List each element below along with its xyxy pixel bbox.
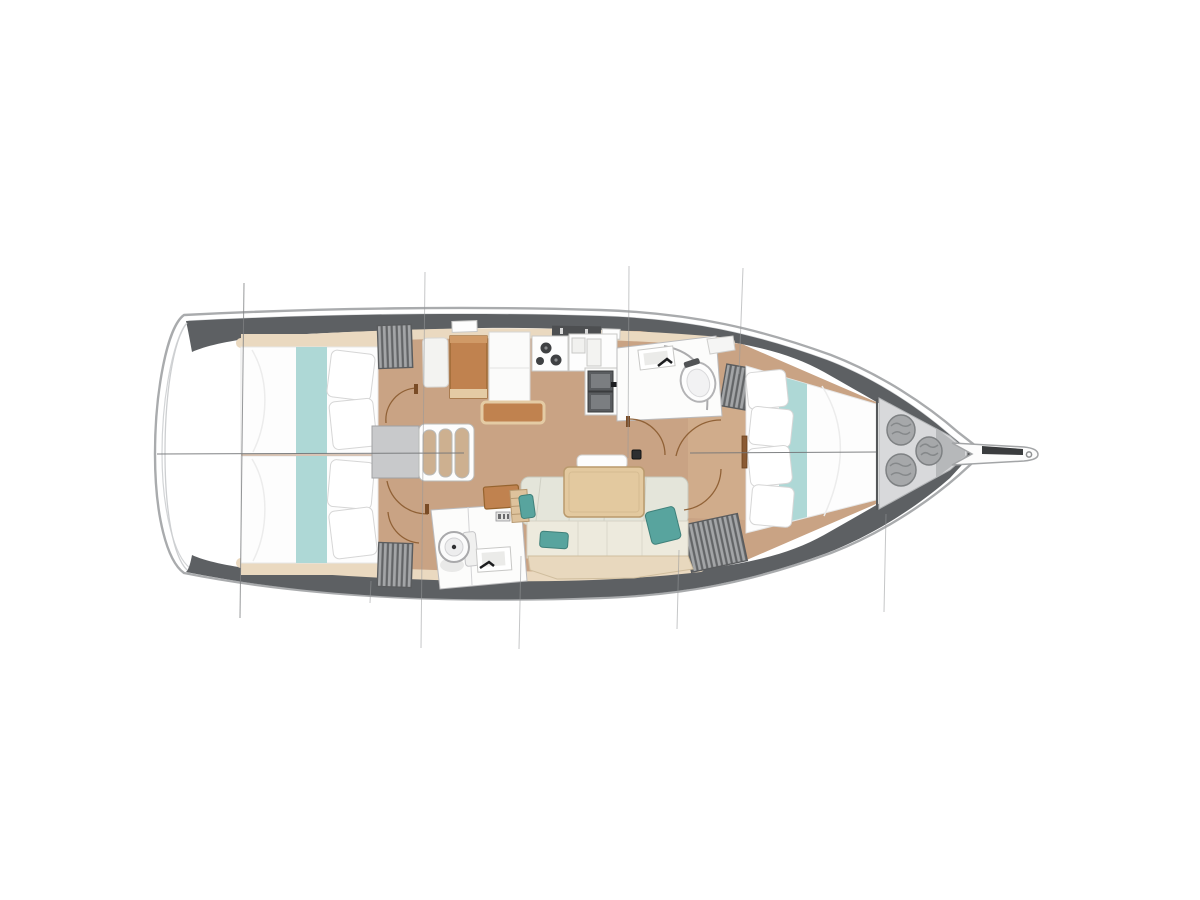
forward-head	[617, 336, 735, 421]
yacht-floor-plan-canvas	[0, 0, 1200, 900]
stove-burner-icon	[536, 357, 544, 365]
icebox-lid	[587, 339, 601, 366]
panel-icon-bar	[503, 514, 505, 519]
toilet-drain	[452, 545, 456, 549]
bed-pillow	[749, 484, 794, 528]
faucet-icon	[611, 382, 617, 387]
panel-icon-bar	[507, 514, 509, 519]
hanging-locker-icon	[377, 542, 413, 587]
berth-runner-teal	[296, 347, 327, 454]
bed-pillow	[745, 369, 789, 410]
yacht-floor-plan	[0, 0, 1200, 900]
hanging-locker-icon	[377, 324, 412, 368]
teal-cushion	[539, 531, 568, 549]
sink-basin-inner	[591, 374, 610, 388]
chart-table-wood-edge	[450, 389, 487, 398]
nav-bench	[482, 402, 544, 423]
bed-pillow	[328, 506, 378, 559]
bed-pillow	[748, 406, 794, 448]
bed-pillow	[747, 445, 793, 487]
panel-icon-bar	[498, 514, 501, 519]
rope-coil-icon	[886, 454, 916, 486]
chart-table-top-edge	[450, 336, 487, 343]
cabin-door-leaf	[742, 436, 747, 468]
nav-seat	[423, 338, 449, 387]
hatch-garage-tick	[560, 328, 563, 334]
rope-coil-icon	[887, 415, 915, 445]
icebox-lid	[572, 338, 585, 353]
sink-basin-inner	[591, 395, 610, 409]
aft-cabins	[241, 334, 378, 575]
mast-post	[632, 450, 641, 459]
forward-entry-floor	[688, 404, 745, 520]
stove	[532, 336, 568, 371]
burner-center	[554, 358, 557, 361]
step-tread	[423, 430, 436, 475]
bed-pillow	[327, 459, 375, 510]
bed-pillow	[329, 398, 378, 450]
chart-table	[450, 336, 487, 398]
companionway-landing	[372, 426, 419, 478]
burner-center	[544, 346, 547, 349]
door-leaf	[414, 384, 418, 394]
deck-hatch-icon	[452, 321, 477, 333]
aft-trim-top	[241, 334, 378, 347]
teal-cushion	[519, 494, 536, 519]
door-leaf	[425, 504, 429, 514]
rope-coil-icon	[916, 437, 942, 465]
salon-table	[564, 467, 644, 517]
berth-runner-teal	[296, 456, 327, 563]
bed-pillow	[326, 349, 375, 401]
